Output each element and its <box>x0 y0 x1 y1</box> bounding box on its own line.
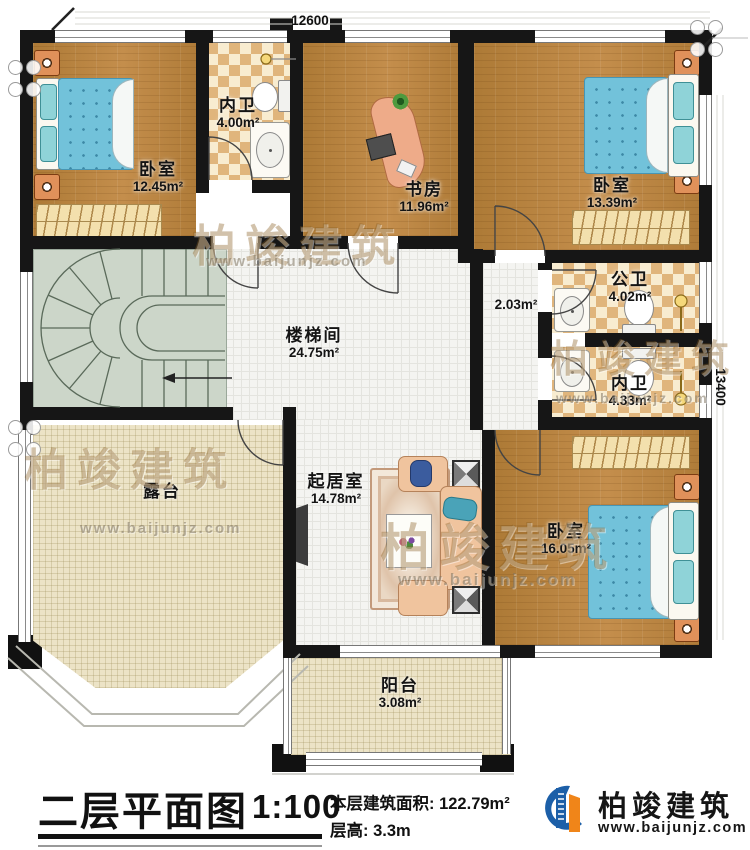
room-label-bath-top: 内卫 4.00m² <box>217 96 260 130</box>
watermark-url: www.baijunjz.com <box>556 390 709 406</box>
company-name: 柏竣建筑 <box>598 783 734 825</box>
room-label-stairwell: 楼梯间 24.75m² <box>286 326 343 360</box>
logo-building-orange <box>569 794 580 832</box>
watermark-url: www.baijunjz.com <box>80 520 241 537</box>
room-label-bedroom-top-left: 卧室 12.45m² <box>133 160 183 194</box>
room-label-study: 书房 11.96m² <box>399 180 449 214</box>
watermark-brand: 柏竣建筑 <box>24 434 236 498</box>
balcony-railing <box>502 658 511 754</box>
balcony-railing <box>283 658 292 754</box>
floor-plan-page: 卧室 12.45m² 内卫 4.00m² 书房 11.96m² 卧室 13.39… <box>0 0 750 850</box>
corner-ornament <box>708 42 723 57</box>
corner-ornament <box>8 442 23 457</box>
room-label-bedroom-top-right: 卧室 13.39m² <box>587 176 637 210</box>
floor-height-line: 层高: 3.3m <box>330 817 411 841</box>
watermark-url: www.baijunjz.com <box>398 570 577 590</box>
corner-ornament <box>690 42 705 57</box>
corner-ornament <box>26 60 41 75</box>
room-label-living-room: 起居室 14.78m² <box>308 472 365 506</box>
corner-ornament <box>708 20 723 35</box>
watermark-brand: 柏竣建筑 <box>550 328 738 383</box>
corner-ornament <box>26 82 41 97</box>
dimension-top: 12600 <box>288 13 332 28</box>
corner-ornament <box>8 82 23 97</box>
title-underline-thin <box>38 845 322 847</box>
corner-ornament <box>8 420 23 435</box>
stair-direction-arrow <box>162 373 232 383</box>
balcony-railing <box>306 752 482 766</box>
company-logo-icon <box>536 780 592 844</box>
floor-area-line: 本层建筑面积: 122.79m² <box>330 790 510 814</box>
company-website: www.baijunjz.com <box>598 820 747 836</box>
corner-ornament <box>26 420 41 435</box>
title-underline <box>38 834 322 839</box>
room-label-public-bath: 公卫 4.02m² <box>609 270 652 304</box>
plan-scale: 1:100 <box>252 788 341 826</box>
watermark-url: www.baijunjz.com <box>206 253 367 270</box>
room-label-hallway: 2.03m² <box>495 297 538 312</box>
corner-ornament <box>8 60 23 75</box>
corner-ornament <box>690 20 705 35</box>
dimension-ticks <box>52 8 722 50</box>
plan-title: 二层平面图 <box>38 779 248 837</box>
dimension-right: 13400 <box>713 352 728 422</box>
room-label-balcony: 阳台 3.08m² <box>379 676 422 710</box>
